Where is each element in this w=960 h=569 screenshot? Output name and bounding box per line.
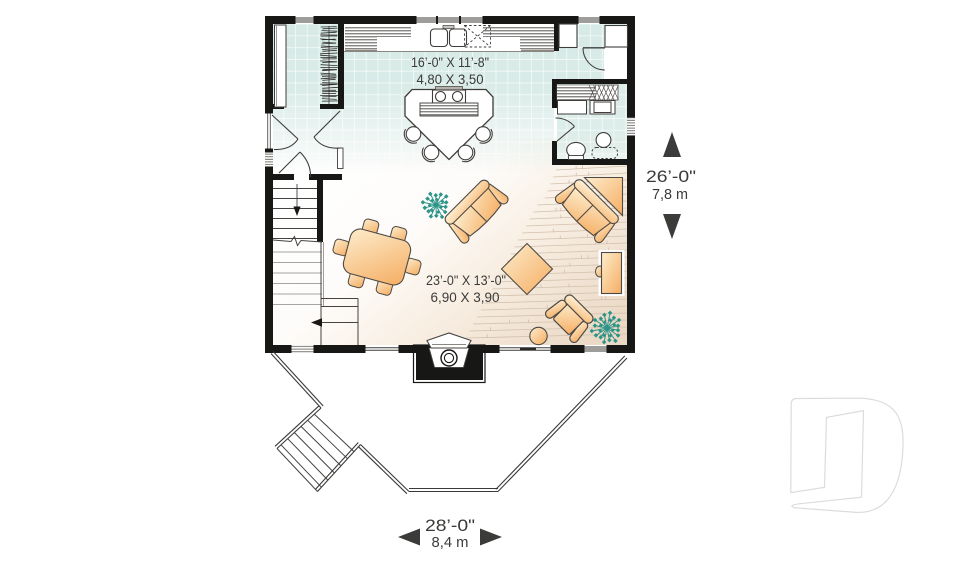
svg-text:16’-0" X 11’-8": 16’-0" X 11’-8" [411, 55, 489, 70]
svg-text:26’-0": 26’-0" [646, 168, 696, 186]
svg-text:7,8 m: 7,8 m [652, 187, 688, 203]
svg-text:8,4 m: 8,4 m [432, 535, 469, 551]
svg-text:28’-0": 28’-0" [425, 517, 475, 535]
svg-text:4,80 X 3,50: 4,80 X 3,50 [417, 72, 484, 87]
svg-text:6,90 X 3,90: 6,90 X 3,90 [431, 290, 500, 305]
svg-text:23’-0" X 13’-0": 23’-0" X 13’-0" [426, 273, 506, 288]
